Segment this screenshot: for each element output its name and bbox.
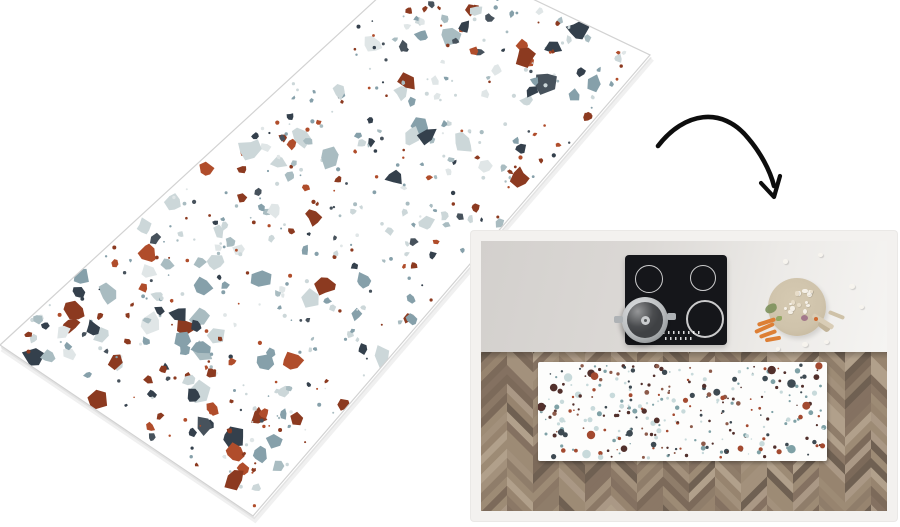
floor-mat	[537, 362, 827, 461]
floor	[481, 352, 887, 511]
garlic-piece	[818, 253, 823, 257]
product-visualization	[0, 0, 900, 527]
arrow-head	[761, 176, 780, 197]
garlic-piece	[802, 342, 808, 347]
garlic-piece	[783, 259, 788, 264]
garlic-piece	[824, 340, 829, 344]
countertop	[481, 241, 887, 352]
garlic-piece	[849, 284, 855, 289]
scattered-garlic	[481, 241, 887, 352]
kitchen-photo	[471, 231, 897, 521]
kitchen-photo-inner	[481, 241, 887, 511]
garlic-piece	[859, 305, 864, 309]
rotation-arrow-icon	[658, 117, 780, 197]
garlic-piece	[776, 347, 780, 351]
arrow-curve	[658, 117, 774, 186]
